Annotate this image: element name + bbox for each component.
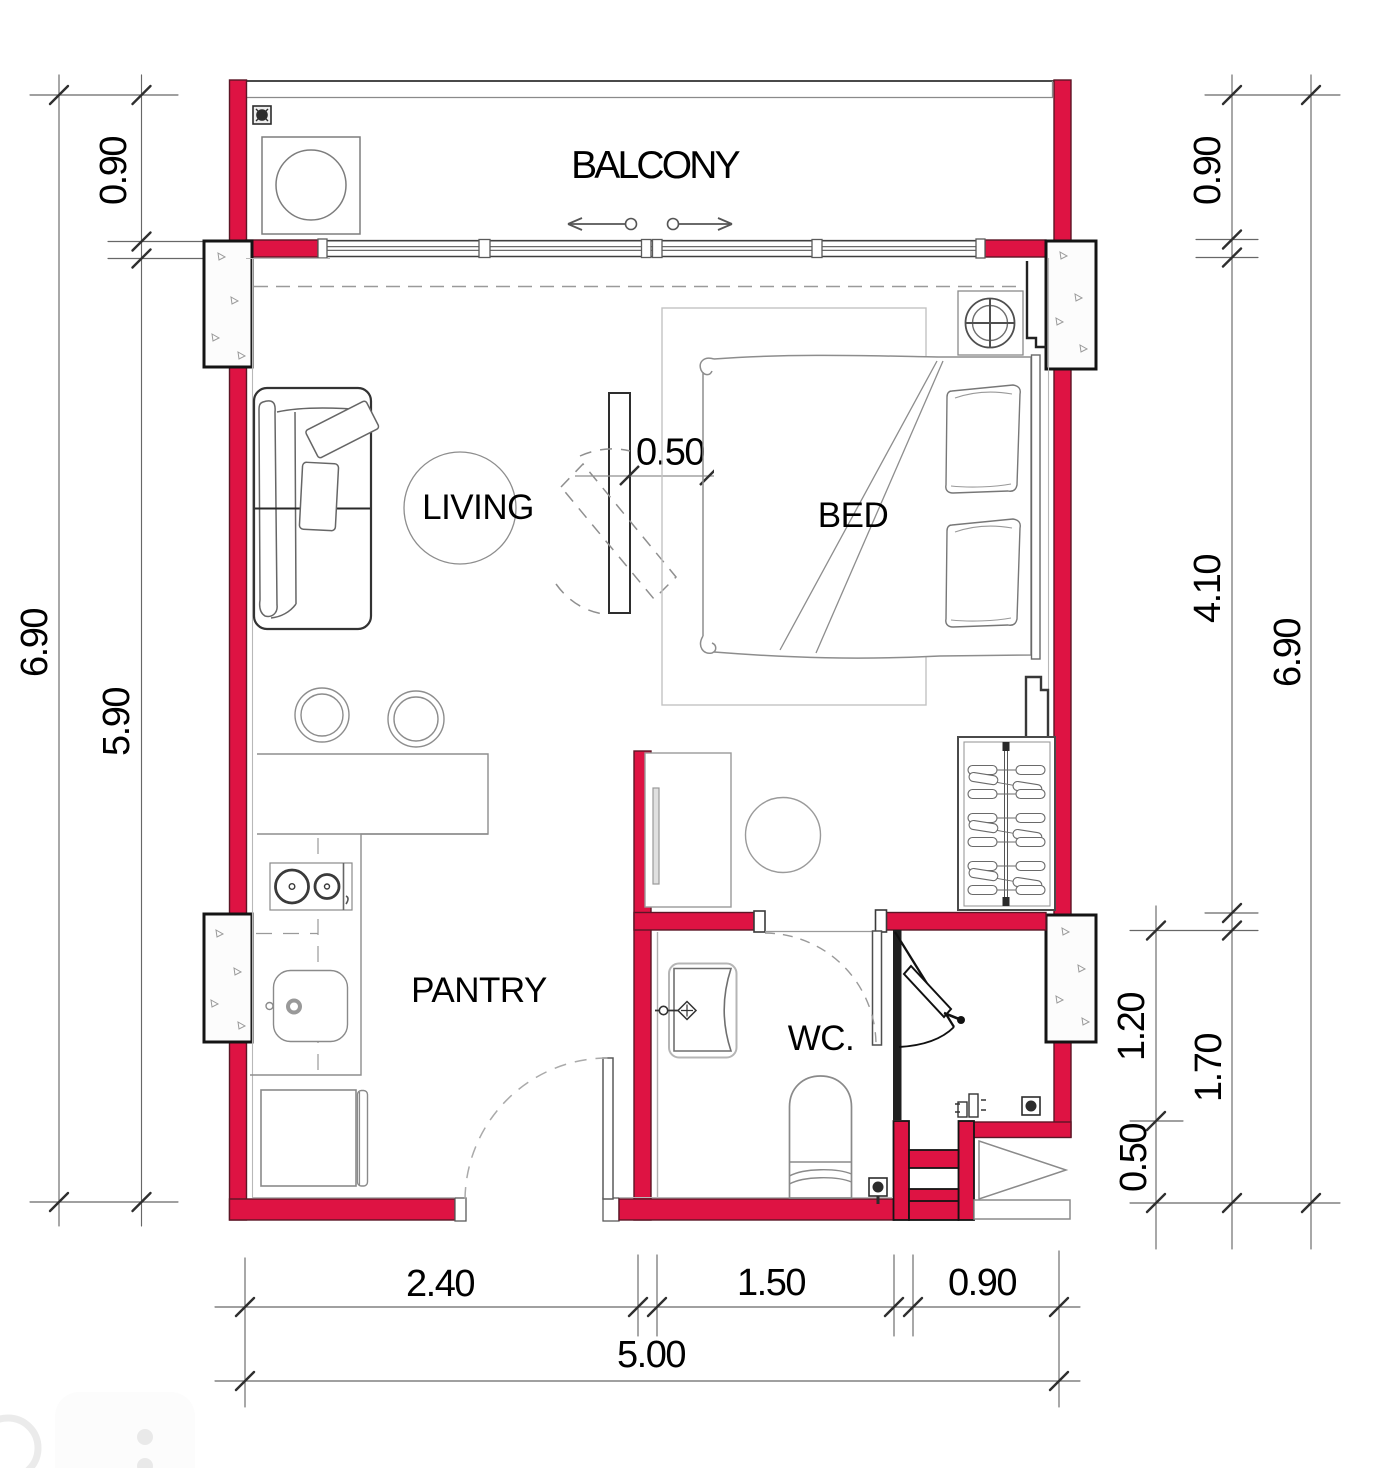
svg-text:6.90: 6.90 — [14, 609, 56, 677]
svg-text:5.90: 5.90 — [96, 688, 138, 756]
svg-text:0.50: 0.50 — [1113, 1124, 1155, 1192]
svg-text:4.10: 4.10 — [1187, 555, 1229, 623]
svg-text:BED: BED — [818, 496, 888, 535]
svg-text:6.90: 6.90 — [1267, 619, 1309, 687]
svg-text:0.90: 0.90 — [948, 1262, 1016, 1304]
svg-text:LIVING: LIVING — [422, 488, 534, 527]
svg-text:0.90: 0.90 — [93, 137, 135, 205]
svg-text:0.50: 0.50 — [636, 432, 704, 474]
svg-text:1.20: 1.20 — [1111, 993, 1153, 1061]
svg-text:PANTRY: PANTRY — [411, 971, 547, 1010]
svg-text:5.00: 5.00 — [617, 1334, 685, 1376]
svg-text:BALCONY: BALCONY — [571, 144, 741, 187]
svg-text:2.40: 2.40 — [406, 1263, 474, 1305]
svg-text:WC.: WC. — [788, 1019, 855, 1058]
svg-text:0.90: 0.90 — [1187, 137, 1229, 205]
svg-text:1.70: 1.70 — [1188, 1034, 1230, 1102]
svg-text:1.50: 1.50 — [737, 1262, 805, 1304]
